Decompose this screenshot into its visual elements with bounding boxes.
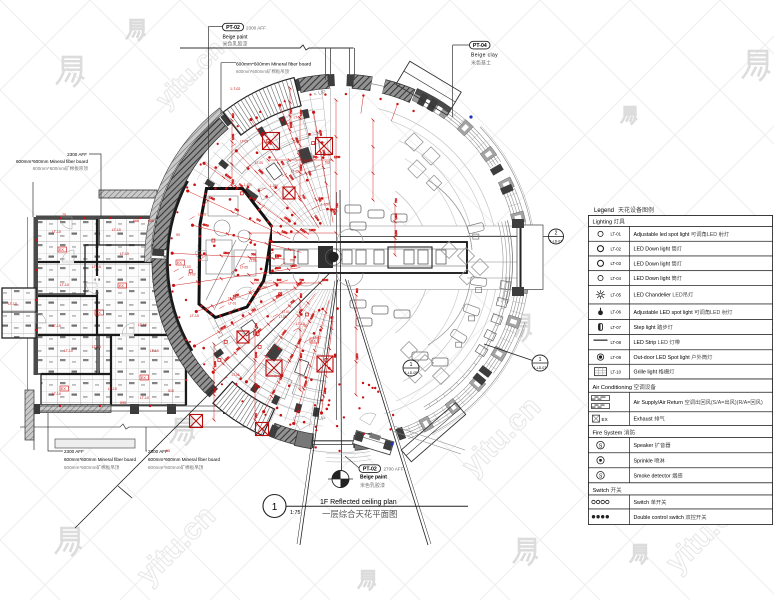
svg-text:LT-10: LT-10 bbox=[8, 302, 17, 306]
svg-text:Adjustable led spot light 可调角L: Adjustable led spot light 可调角LED 射灯 bbox=[634, 230, 730, 238]
svg-text:75: 75 bbox=[62, 213, 66, 217]
svg-text:EX: EX bbox=[59, 248, 64, 252]
svg-text:LT-10: LT-10 bbox=[92, 345, 101, 349]
svg-text:1-LD-05: 1-LD-05 bbox=[405, 371, 417, 375]
svg-text:LT-09: LT-09 bbox=[611, 355, 622, 360]
svg-text:1: 1 bbox=[539, 357, 542, 363]
svg-text:700: 700 bbox=[394, 198, 398, 203]
svg-text:1000: 1000 bbox=[254, 351, 258, 358]
svg-text:天花设备图例: 天花设备图例 bbox=[618, 206, 654, 214]
svg-text:EX: EX bbox=[119, 284, 124, 288]
svg-text:1-LD-07: 1-LD-07 bbox=[534, 366, 546, 370]
svg-text:LT-02: LT-02 bbox=[611, 246, 622, 251]
svg-text:S: S bbox=[599, 443, 603, 449]
svg-text:LT-02: LT-02 bbox=[199, 212, 207, 216]
svg-text:700: 700 bbox=[313, 155, 318, 159]
svg-text:1-LD-07: 1-LD-07 bbox=[550, 240, 562, 244]
svg-text:600: 600 bbox=[299, 353, 303, 358]
svg-text:1000: 1000 bbox=[289, 121, 293, 128]
svg-text:1000: 1000 bbox=[299, 164, 303, 171]
svg-text:2300 AFF: 2300 AFF bbox=[246, 26, 266, 31]
svg-text:LT-01: LT-01 bbox=[282, 310, 290, 314]
svg-text:600mm*600mm Mineral fiber boar: 600mm*600mm Mineral fiber board bbox=[16, 159, 88, 164]
svg-text:LT-06: LT-06 bbox=[294, 116, 302, 120]
svg-text:600: 600 bbox=[231, 113, 235, 118]
svg-text:LT-10: LT-10 bbox=[120, 252, 129, 256]
svg-text:600: 600 bbox=[355, 288, 359, 293]
svg-text:595: 595 bbox=[120, 401, 126, 405]
svg-text:700: 700 bbox=[325, 161, 331, 165]
svg-text:Sprinkle 喷淋: Sprinkle 喷淋 bbox=[634, 456, 666, 464]
svg-text:EX: EX bbox=[311, 339, 316, 343]
svg-text:666: 666 bbox=[133, 219, 139, 223]
svg-text:1000: 1000 bbox=[394, 213, 398, 220]
svg-text:LT-10: LT-10 bbox=[108, 387, 117, 391]
svg-text:1: 1 bbox=[272, 502, 278, 513]
svg-text:LT-10: LT-10 bbox=[52, 230, 61, 234]
svg-text:1350: 1350 bbox=[323, 387, 328, 394]
svg-text:600mm*600mm Mineral fiber boar: 600mm*600mm Mineral fiber board bbox=[236, 62, 312, 68]
svg-text:Double control switch 双控开关: Double control switch 双控开关 bbox=[634, 513, 708, 521]
svg-text:600: 600 bbox=[299, 293, 303, 298]
svg-text:LT-10: LT-10 bbox=[611, 369, 622, 374]
svg-text:LT-10: LT-10 bbox=[138, 323, 147, 327]
svg-text:1-100: 1-100 bbox=[244, 183, 252, 187]
svg-text:LT-05: LT-05 bbox=[291, 169, 299, 173]
svg-text:LED Down light 筒灯: LED Down light 筒灯 bbox=[634, 245, 683, 253]
svg-text:EX: EX bbox=[141, 376, 146, 380]
svg-text:1-100: 1-100 bbox=[301, 160, 309, 164]
svg-text:Legend: Legend bbox=[594, 208, 614, 214]
svg-text:Beige clay: Beige clay bbox=[471, 53, 498, 59]
svg-text:LT-10: LT-10 bbox=[60, 283, 69, 287]
svg-text:700: 700 bbox=[254, 323, 258, 328]
svg-text:LT-03: LT-03 bbox=[611, 261, 622, 266]
svg-text:1200: 1200 bbox=[355, 353, 359, 360]
svg-text:90: 90 bbox=[176, 233, 180, 237]
svg-text:1200: 1200 bbox=[309, 228, 316, 232]
svg-text:EX: EX bbox=[61, 387, 66, 391]
svg-text:LED Chandelier LED吊灯: LED Chandelier LED吊灯 bbox=[634, 291, 694, 299]
svg-text:700: 700 bbox=[289, 109, 293, 114]
svg-text:1000: 1000 bbox=[322, 278, 329, 282]
svg-text:Exhaust 排气: Exhaust 排气 bbox=[634, 415, 666, 423]
svg-text:1200: 1200 bbox=[213, 361, 217, 368]
svg-text:LT-10: LT-10 bbox=[52, 324, 61, 328]
svg-text:2: 2 bbox=[555, 231, 558, 237]
svg-text:2300 AFF: 2300 AFF bbox=[67, 152, 87, 157]
svg-text:Smoke detector 烟感: Smoke detector 烟感 bbox=[634, 471, 684, 479]
svg-text:LT-03: LT-03 bbox=[183, 265, 191, 269]
svg-text:600: 600 bbox=[277, 278, 282, 282]
svg-text:Step light 踏步灯: Step light 踏步灯 bbox=[634, 323, 674, 331]
svg-text:1-100: 1-100 bbox=[270, 184, 278, 188]
svg-text:700: 700 bbox=[254, 383, 258, 388]
svg-text:一层综合天花平面图: 一层综合天花平面图 bbox=[322, 509, 397, 519]
svg-text:700: 700 bbox=[254, 278, 259, 282]
svg-text:Lighting 灯具: Lighting 灯具 bbox=[593, 217, 626, 225]
svg-text:700: 700 bbox=[335, 203, 339, 208]
svg-text:PT-02: PT-02 bbox=[226, 25, 240, 31]
svg-text:600mm*600mm矿棉板吊顶: 600mm*600mm矿棉板吊顶 bbox=[64, 464, 120, 471]
svg-text:600mm*600mm矿棉板吊顶: 600mm*600mm矿棉板吊顶 bbox=[236, 68, 290, 75]
svg-text:LT-05: LT-05 bbox=[240, 266, 248, 270]
svg-text:LT-05: LT-05 bbox=[255, 161, 263, 165]
svg-text:700: 700 bbox=[213, 388, 217, 393]
svg-text:1F Reflected ceiling plan: 1F Reflected ceiling plan bbox=[320, 499, 397, 506]
svg-text:1500: 1500 bbox=[223, 251, 230, 255]
svg-text:LT-06: LT-06 bbox=[232, 373, 240, 377]
svg-text:605: 605 bbox=[148, 219, 154, 223]
svg-text:LT-04: LT-04 bbox=[611, 276, 622, 281]
svg-text:1: 1 bbox=[410, 362, 413, 368]
svg-text:Beige paint: Beige paint bbox=[360, 475, 387, 481]
svg-text:1-100: 1-100 bbox=[258, 286, 266, 290]
svg-text:700: 700 bbox=[231, 179, 235, 184]
svg-text:LT-10: LT-10 bbox=[150, 349, 159, 353]
svg-text:1-T-02: 1-T-02 bbox=[230, 87, 240, 91]
svg-text:Switch 单开关: Switch 单开关 bbox=[634, 498, 668, 506]
svg-text:2300 AFF: 2300 AFF bbox=[64, 449, 84, 454]
svg-text:600mm*600mm矿棉板吊顶: 600mm*600mm矿棉板吊顶 bbox=[33, 165, 89, 172]
svg-text:1-100: 1-100 bbox=[321, 202, 329, 206]
svg-text:LT-08: LT-08 bbox=[611, 340, 622, 345]
svg-text:LT-06: LT-06 bbox=[279, 315, 287, 319]
svg-text:700: 700 bbox=[251, 252, 256, 256]
svg-text:LT-05: LT-05 bbox=[611, 293, 622, 298]
svg-text:595: 595 bbox=[250, 257, 256, 261]
svg-text:Air Conditioning 空调设备: Air Conditioning 空调设备 bbox=[593, 383, 657, 391]
svg-text:2700 AFF: 2700 AFF bbox=[384, 467, 404, 472]
svg-text:LT-07: LT-07 bbox=[611, 325, 622, 330]
svg-text:LT-01: LT-01 bbox=[611, 232, 622, 237]
svg-text:600mm*600mm矿棉板吊顶: 600mm*600mm矿棉板吊顶 bbox=[148, 464, 204, 471]
svg-text:LT-05: LT-05 bbox=[240, 140, 248, 144]
svg-text:Switch 开关: Switch 开关 bbox=[593, 486, 623, 494]
svg-text:LT-10: LT-10 bbox=[190, 314, 199, 318]
svg-text:LT-06: LT-06 bbox=[611, 310, 622, 315]
svg-text:1000: 1000 bbox=[231, 133, 235, 140]
svg-text:Adjustable LED spot light 可调角L: Adjustable LED spot light 可调角LED 射灯 bbox=[634, 308, 734, 316]
svg-text:LT-10: LT-10 bbox=[112, 228, 121, 232]
svg-text:1200: 1200 bbox=[334, 155, 341, 159]
svg-text:LT-01: LT-01 bbox=[228, 302, 236, 306]
svg-text:LT-03: LT-03 bbox=[228, 297, 236, 301]
svg-text:700: 700 bbox=[299, 278, 304, 282]
svg-text:510: 510 bbox=[168, 389, 174, 393]
svg-text:Out-door LED Spot light 户外筒灯: Out-door LED Spot light 户外筒灯 bbox=[634, 353, 714, 361]
svg-text:Beige paint: Beige paint bbox=[223, 35, 249, 41]
svg-text:PT-02: PT-02 bbox=[363, 467, 377, 473]
svg-text:EX: EX bbox=[602, 417, 608, 422]
svg-text:LT-10: LT-10 bbox=[140, 396, 149, 400]
svg-text:1200: 1200 bbox=[394, 230, 398, 237]
svg-text:LT-10: LT-10 bbox=[92, 265, 101, 269]
svg-text:Grille light 格栅灯: Grille light 格栅灯 bbox=[634, 368, 676, 376]
svg-text:700: 700 bbox=[290, 258, 296, 262]
svg-text:600mm*600mm Mineral fiber boar: 600mm*600mm Mineral fiber board bbox=[148, 457, 220, 462]
svg-text:LT-02: LT-02 bbox=[188, 273, 196, 277]
svg-text:S: S bbox=[599, 474, 603, 480]
svg-text:2300 AFF: 2300 AFF bbox=[148, 449, 168, 454]
svg-text:Air Supply/Air Return 空调出回风(S/: Air Supply/Air Return 空调出回风(S/A=出风)(R/A=… bbox=[634, 398, 763, 406]
svg-text:EX: EX bbox=[177, 261, 182, 265]
svg-text:LT-10: LT-10 bbox=[296, 322, 305, 326]
svg-text:Fire System 消防: Fire System 消防 bbox=[593, 428, 636, 436]
svg-text:米色乳胶漆: 米色乳胶漆 bbox=[360, 482, 385, 489]
svg-text:Speaker 扩音器: Speaker 扩音器 bbox=[634, 441, 672, 449]
svg-text:LED Down light 筒灯: LED Down light 筒灯 bbox=[634, 259, 683, 267]
svg-text:600mm*600mm Mineral fiber boar: 600mm*600mm Mineral fiber board bbox=[64, 457, 136, 462]
svg-text:1:75: 1:75 bbox=[290, 510, 301, 516]
svg-text:LED Down light 筒灯: LED Down light 筒灯 bbox=[634, 274, 683, 282]
svg-text:PT-04: PT-04 bbox=[473, 43, 487, 49]
svg-text:LT-10: LT-10 bbox=[64, 349, 73, 353]
svg-text:EX: EX bbox=[96, 311, 101, 315]
svg-text:米色基土: 米色基土 bbox=[471, 60, 491, 67]
svg-text:LT-10: LT-10 bbox=[52, 392, 61, 396]
svg-text:LED Strip LED 灯带: LED Strip LED 灯带 bbox=[634, 338, 681, 346]
svg-text:700: 700 bbox=[254, 413, 258, 418]
svg-text:米色乳胶漆: 米色乳胶漆 bbox=[223, 41, 248, 48]
